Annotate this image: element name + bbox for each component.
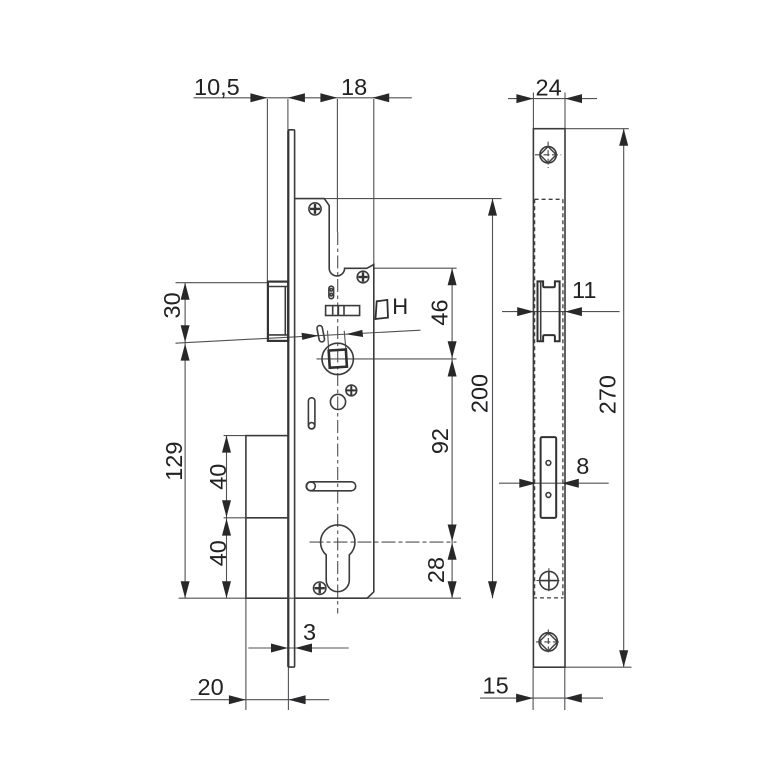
svg-text:40: 40 [205,540,231,566]
svg-text:11: 11 [572,277,596,303]
svg-text:30: 30 [159,292,185,318]
svg-text:92: 92 [427,428,453,454]
svg-text:46: 46 [427,299,453,325]
svg-text:3: 3 [303,619,316,645]
svg-text:200: 200 [467,374,493,413]
svg-text:24: 24 [536,75,562,101]
svg-text:10,5: 10,5 [194,74,240,100]
svg-text:20: 20 [198,674,224,700]
svg-text:15: 15 [483,673,509,699]
svg-text:129: 129 [161,442,187,481]
svg-text:18: 18 [341,74,367,100]
svg-text:28: 28 [423,557,449,583]
svg-text:40: 40 [205,464,231,490]
svg-text:8: 8 [576,453,589,479]
svg-text:270: 270 [595,375,621,414]
svg-text:H: H [392,294,408,319]
